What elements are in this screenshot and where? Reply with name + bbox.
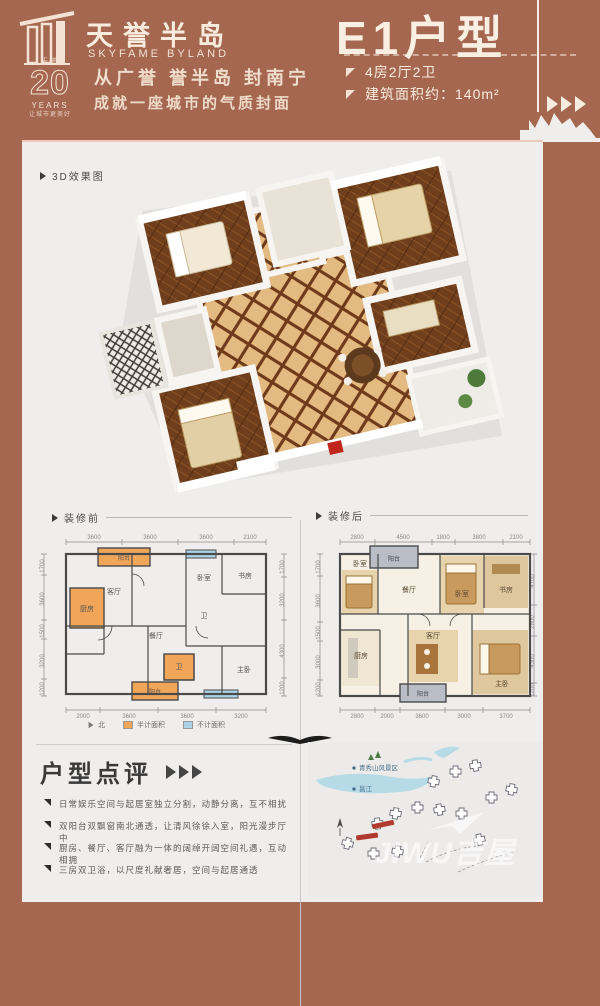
orange-swatch-icon bbox=[123, 721, 133, 729]
dim-label: 2100 bbox=[509, 535, 523, 541]
slogan-line1: 从广誉 誉半岛 封南宁 bbox=[94, 64, 310, 90]
review-title-text: 户型点评 bbox=[40, 754, 152, 789]
review-point: 双阳台双飘窗南北通透，让清风徐徐入室，阳光漫步厅中 bbox=[44, 820, 292, 844]
dim-label: 3600 bbox=[316, 594, 322, 608]
room-label: 厨房 bbox=[80, 604, 94, 613]
deco-vertical-line bbox=[537, 0, 539, 112]
slogan-line2: 成就一座城市的气质封面 bbox=[94, 92, 292, 113]
badge-top-text: 天誉 bbox=[12, 58, 88, 65]
blue-swatch-icon bbox=[183, 721, 193, 729]
dim-label: 3600 bbox=[415, 714, 429, 718]
dim-label: 2800 bbox=[350, 714, 364, 718]
review-point: 厨房、餐厅、客厅融为一体的阔绰开阔空间礼遇，互动相拥 bbox=[44, 842, 292, 866]
section-rule bbox=[370, 515, 528, 516]
room-label: 书房 bbox=[238, 571, 252, 580]
dim-label: 4500 bbox=[396, 535, 410, 541]
review-point: 日常娱乐空间与起居室独立分割，动静分离，互不相扰 bbox=[44, 798, 292, 810]
dim-label: 3600 bbox=[87, 535, 101, 541]
room-label: 卫 bbox=[176, 663, 183, 671]
badge-number: 20 bbox=[12, 66, 88, 100]
dim-label: 2000 bbox=[380, 714, 394, 718]
review-title: 户型点评 bbox=[40, 754, 202, 789]
skyline-silhouette bbox=[520, 108, 600, 142]
section-rule bbox=[106, 517, 292, 518]
dim-label: 3600 bbox=[143, 535, 157, 541]
room-label: 卧室 bbox=[353, 559, 367, 568]
review-point-text: 三房双卫浴，以尺度礼献奢居，空间与起居通透 bbox=[59, 864, 259, 876]
spec-rooms: 4房2厅2卫 bbox=[346, 62, 436, 82]
north-arrow-icon bbox=[89, 722, 94, 728]
spec-rooms-text: 4房2厅2卫 bbox=[365, 62, 436, 82]
plan-legend: 北 半计面积 不计面积 bbox=[88, 720, 225, 730]
room-label: 餐厅 bbox=[149, 631, 163, 640]
badge-tagline: 让城市更美好 bbox=[12, 112, 88, 118]
floorplan-after: 2800 4500 1800 3800 2100 2800 2000 3600 … bbox=[312, 534, 542, 718]
triangle-marker-icon bbox=[346, 68, 355, 77]
spec-area: 建筑面积约：140m² bbox=[346, 84, 500, 104]
room-label: 客厅 bbox=[426, 631, 440, 640]
dim-label: 1500 bbox=[40, 624, 46, 638]
title-divider bbox=[344, 54, 576, 56]
room-label: 餐厅 bbox=[402, 585, 416, 594]
paper-plane-icon bbox=[426, 810, 486, 836]
before-section-label: 装修前 bbox=[52, 510, 292, 525]
dim-label: 2800 bbox=[350, 535, 364, 541]
watermark: JIWU吉屋 bbox=[374, 828, 515, 872]
bullet-triangle-icon bbox=[44, 799, 51, 806]
review-point: 三房双卫浴，以尺度礼献奢居，空间与起居通透 bbox=[44, 864, 292, 876]
review-point-text: 日常娱乐空间与起居室独立分割，动静分离，互不相扰 bbox=[59, 798, 287, 810]
floorplan-before: 3600 3600 3600 2100 2000 3600 3600 3200 … bbox=[36, 534, 292, 718]
dim-label: 1500 bbox=[316, 626, 322, 640]
watermark-text: JIWU吉屋 bbox=[374, 837, 515, 870]
dim-label: 3600 bbox=[199, 535, 213, 541]
dim-label: 3000 bbox=[316, 655, 322, 669]
dim-label: 3600 bbox=[122, 714, 136, 718]
triangle-right-icon bbox=[52, 514, 58, 522]
dim-label: 3600 bbox=[40, 592, 46, 606]
content-panel: 3D效果图 bbox=[22, 140, 543, 902]
dim-label: 1700 bbox=[280, 560, 286, 574]
dim-label: 2100 bbox=[243, 535, 257, 541]
room-label: 书房 bbox=[499, 585, 513, 594]
bullet-triangle-icon bbox=[44, 865, 51, 872]
review-point-text: 双阳台双飘窗南北通透，让清风徐徐入室，阳光漫步厅中 bbox=[59, 820, 292, 844]
room-label: 卫 bbox=[201, 612, 208, 620]
dim-label: 1700 bbox=[316, 560, 322, 574]
triangle-right-icon bbox=[316, 512, 322, 520]
legend-none-text: 不计面积 bbox=[197, 720, 225, 730]
dim-label: 1200 bbox=[40, 682, 46, 696]
column-divider bbox=[300, 520, 301, 1006]
bullet-triangle-icon bbox=[44, 843, 51, 850]
triangle-marker-icon bbox=[346, 90, 355, 99]
room-label: 阳台 bbox=[149, 688, 161, 696]
triangle-right-icon bbox=[40, 172, 46, 180]
legend-half-text: 半计面积 bbox=[137, 720, 165, 730]
floorplan-3d-render bbox=[62, 150, 524, 502]
bullet-triangle-icon bbox=[44, 821, 51, 828]
legend-north-text: 北 bbox=[98, 720, 105, 730]
spec-area-text: 建筑面积约：140m² bbox=[365, 84, 500, 104]
before-label-text: 装修前 bbox=[64, 510, 100, 525]
room-label: 卧室 bbox=[455, 589, 469, 598]
map-river-label: 邕江 bbox=[359, 784, 373, 793]
anniversary-badge: 天誉 20 YEARS 让城市更美好 bbox=[12, 58, 88, 118]
brand-name-en: SKYFAME BYLAND bbox=[88, 48, 229, 60]
room-label: 阳台 bbox=[417, 690, 429, 698]
badge-years: YEARS bbox=[12, 102, 88, 110]
dim-label: 3200 bbox=[280, 593, 286, 607]
after-label-text: 装修后 bbox=[328, 508, 364, 523]
room-label: 主卧 bbox=[237, 665, 251, 674]
dim-label: 3200 bbox=[234, 714, 248, 718]
poster-root: { "header": { "brand_cn": "天誉半岛", "brand… bbox=[0, 0, 600, 900]
room-label: 厨房 bbox=[354, 651, 368, 660]
review-top-rule bbox=[36, 744, 292, 745]
room-label: 主卧 bbox=[495, 679, 509, 688]
room-label: 阳台 bbox=[388, 555, 400, 563]
legend-half-area: 半计面积 bbox=[123, 720, 165, 730]
dim-label: 2000 bbox=[76, 714, 90, 718]
after-section-label: 装修后 bbox=[316, 508, 528, 523]
room-label: 卧室 bbox=[197, 573, 211, 582]
legend-no-area: 不计面积 bbox=[183, 720, 225, 730]
legend-north: 北 bbox=[88, 720, 105, 730]
dim-label: 1200 bbox=[280, 681, 286, 695]
dim-label: 1800 bbox=[436, 535, 450, 541]
unit-type-title: E1户型 bbox=[336, 2, 508, 68]
dim-label: 1700 bbox=[40, 559, 46, 573]
room-label: 阳台 bbox=[118, 554, 130, 562]
review-point-text: 厨房、餐厅、客厅融为一体的阔绰开阔空间礼遇，互动相拥 bbox=[59, 842, 292, 866]
map-scenic-label: 青秀山风景区 bbox=[359, 763, 399, 772]
review-arrows-icon bbox=[166, 765, 202, 779]
dim-label: 3700 bbox=[499, 714, 513, 718]
dim-label: 1200 bbox=[316, 682, 322, 696]
dim-label: 3000 bbox=[457, 714, 471, 718]
dim-label: 4300 bbox=[280, 644, 286, 658]
dim-label: 3800 bbox=[472, 535, 486, 541]
dim-label: 3200 bbox=[40, 654, 46, 668]
room-label: 客厅 bbox=[107, 587, 121, 596]
dim-label: 3600 bbox=[180, 714, 194, 718]
